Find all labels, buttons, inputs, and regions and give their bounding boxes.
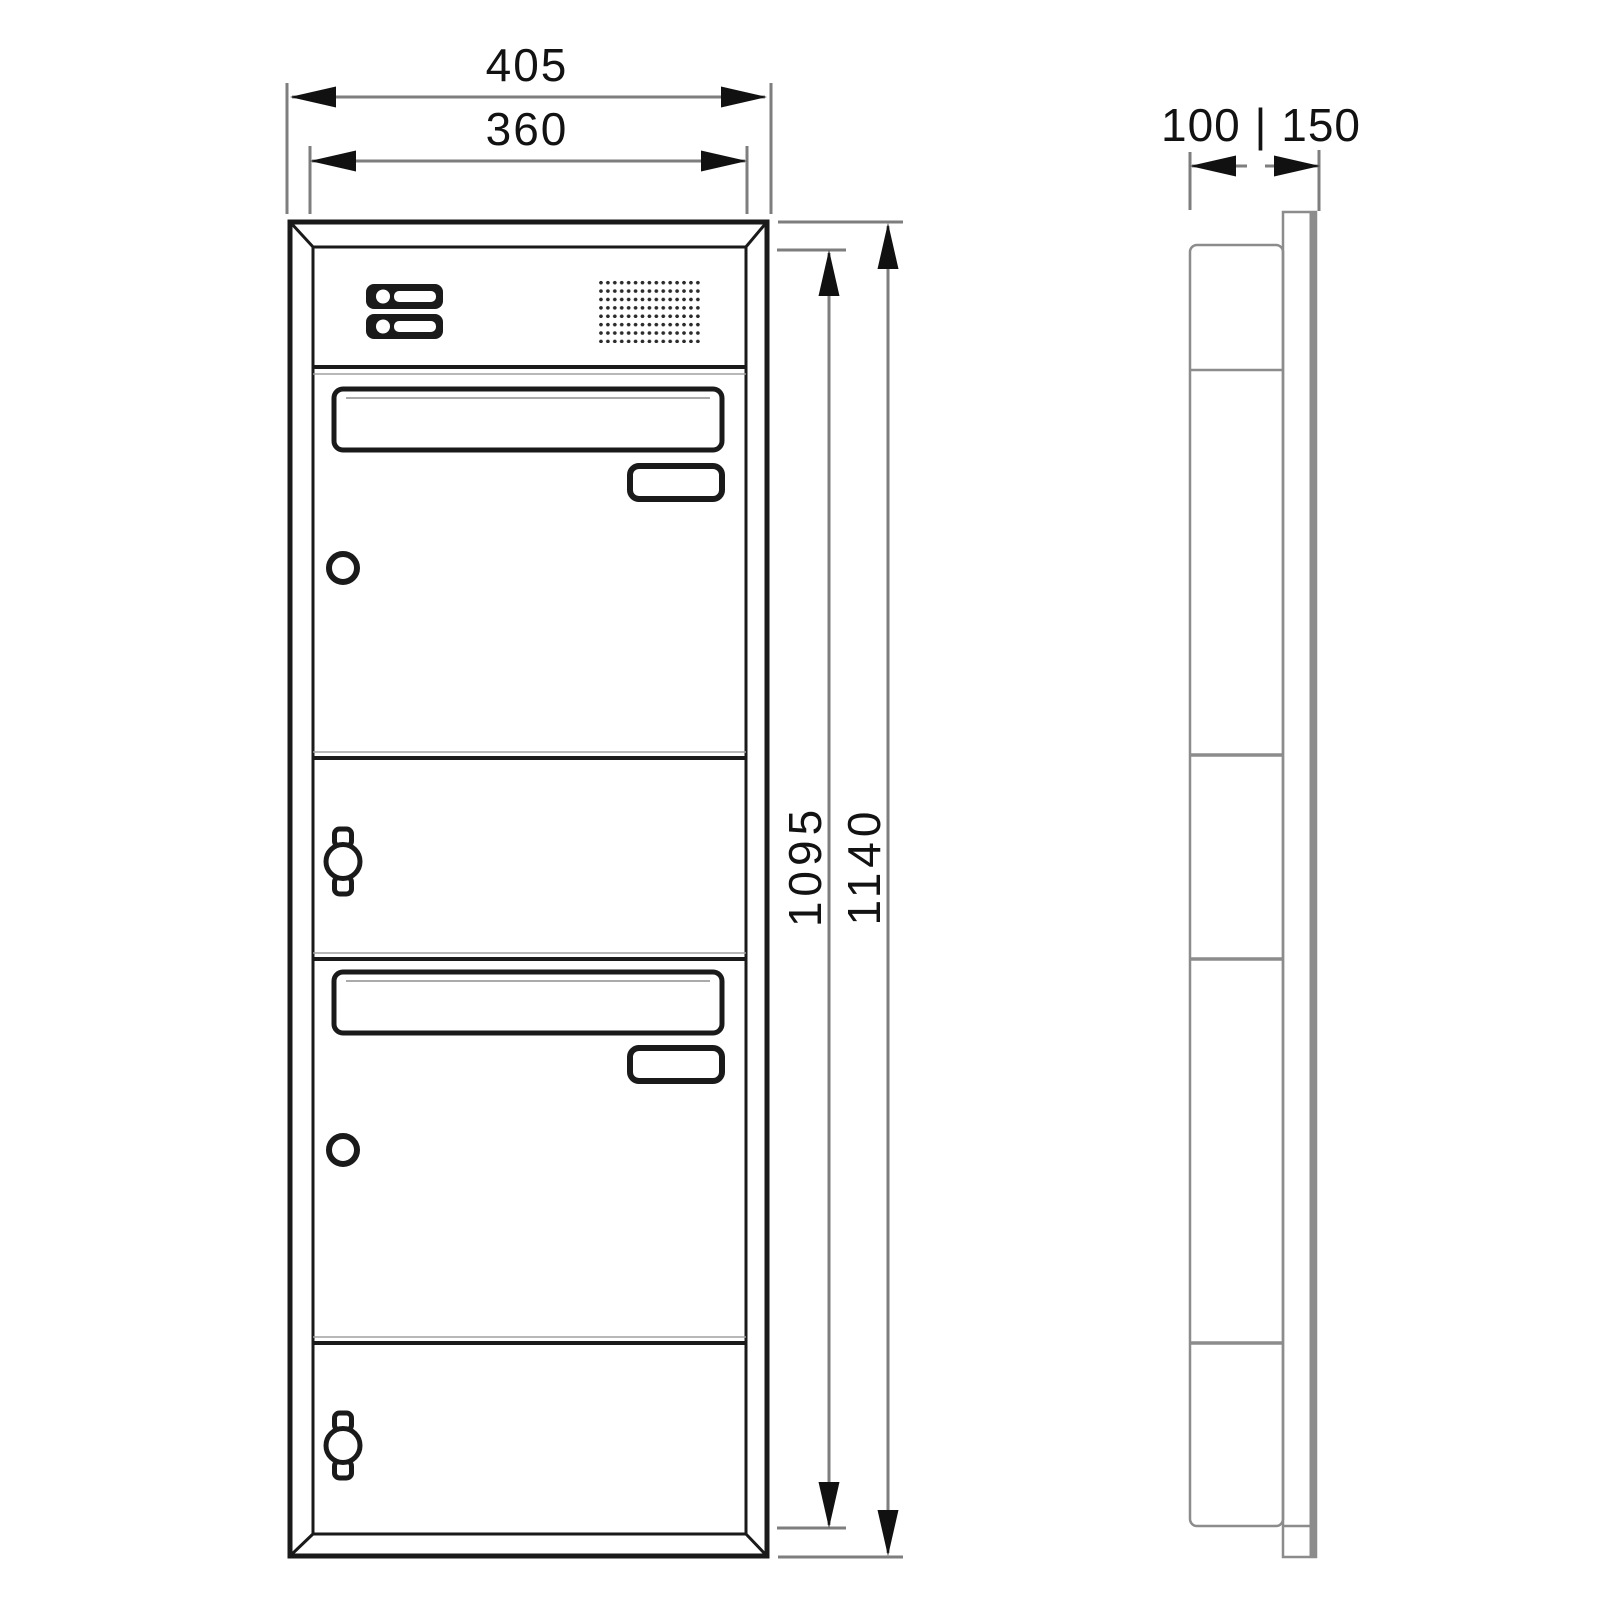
arrow-left-icon bbox=[310, 151, 356, 172]
speaker-grille-icon bbox=[596, 277, 700, 343]
mailbox-door-2 bbox=[313, 972, 746, 1343]
arrow-down-icon bbox=[878, 1510, 899, 1556]
mailbox-door-1 bbox=[313, 389, 746, 758]
arrow-left-icon bbox=[1190, 156, 1236, 177]
technical-drawing: 405 360 1095 1140 100 | 150 bbox=[0, 0, 1600, 1600]
blank-panel-2 bbox=[326, 1413, 360, 1478]
dim-label-inner-height: 1095 bbox=[780, 776, 830, 956]
dim-label-outer-width: 405 bbox=[447, 40, 607, 90]
cylinder-lock-1 bbox=[326, 845, 360, 879]
mail-slot-handle-1 bbox=[630, 466, 722, 499]
arrow-right-icon bbox=[701, 151, 747, 172]
dim-label-inner-width: 360 bbox=[447, 104, 607, 154]
side-inwall-box bbox=[1190, 245, 1283, 1526]
side-view bbox=[1190, 212, 1316, 1557]
dimension-depth bbox=[1190, 150, 1320, 211]
arrow-down-icon bbox=[819, 1482, 840, 1528]
door-lock-1 bbox=[329, 554, 357, 582]
dim-label-outer-height: 1140 bbox=[839, 776, 889, 956]
arrow-right-icon bbox=[721, 87, 767, 108]
arrow-right-icon bbox=[1274, 156, 1320, 177]
frame-bevels bbox=[291, 223, 766, 1555]
cylinder-lock-2 bbox=[326, 1429, 360, 1463]
inner-frame bbox=[313, 247, 746, 1534]
door-lock-2 bbox=[329, 1136, 357, 1164]
bell-button-2 bbox=[366, 314, 443, 339]
bell-button-1 bbox=[366, 284, 443, 309]
mail-slot-handle-2 bbox=[630, 1048, 722, 1081]
dimension-inner-width bbox=[310, 146, 747, 214]
blank-panel-1 bbox=[313, 829, 746, 959]
outer-frame bbox=[290, 222, 767, 1556]
arrow-up-icon bbox=[819, 250, 840, 296]
arrow-up-icon bbox=[878, 223, 899, 269]
dim-label-depth: 100 | 150 bbox=[1141, 100, 1381, 150]
side-shelf-lines bbox=[1190, 370, 1283, 1343]
arrow-left-icon bbox=[290, 87, 336, 108]
front-view bbox=[290, 222, 767, 1556]
